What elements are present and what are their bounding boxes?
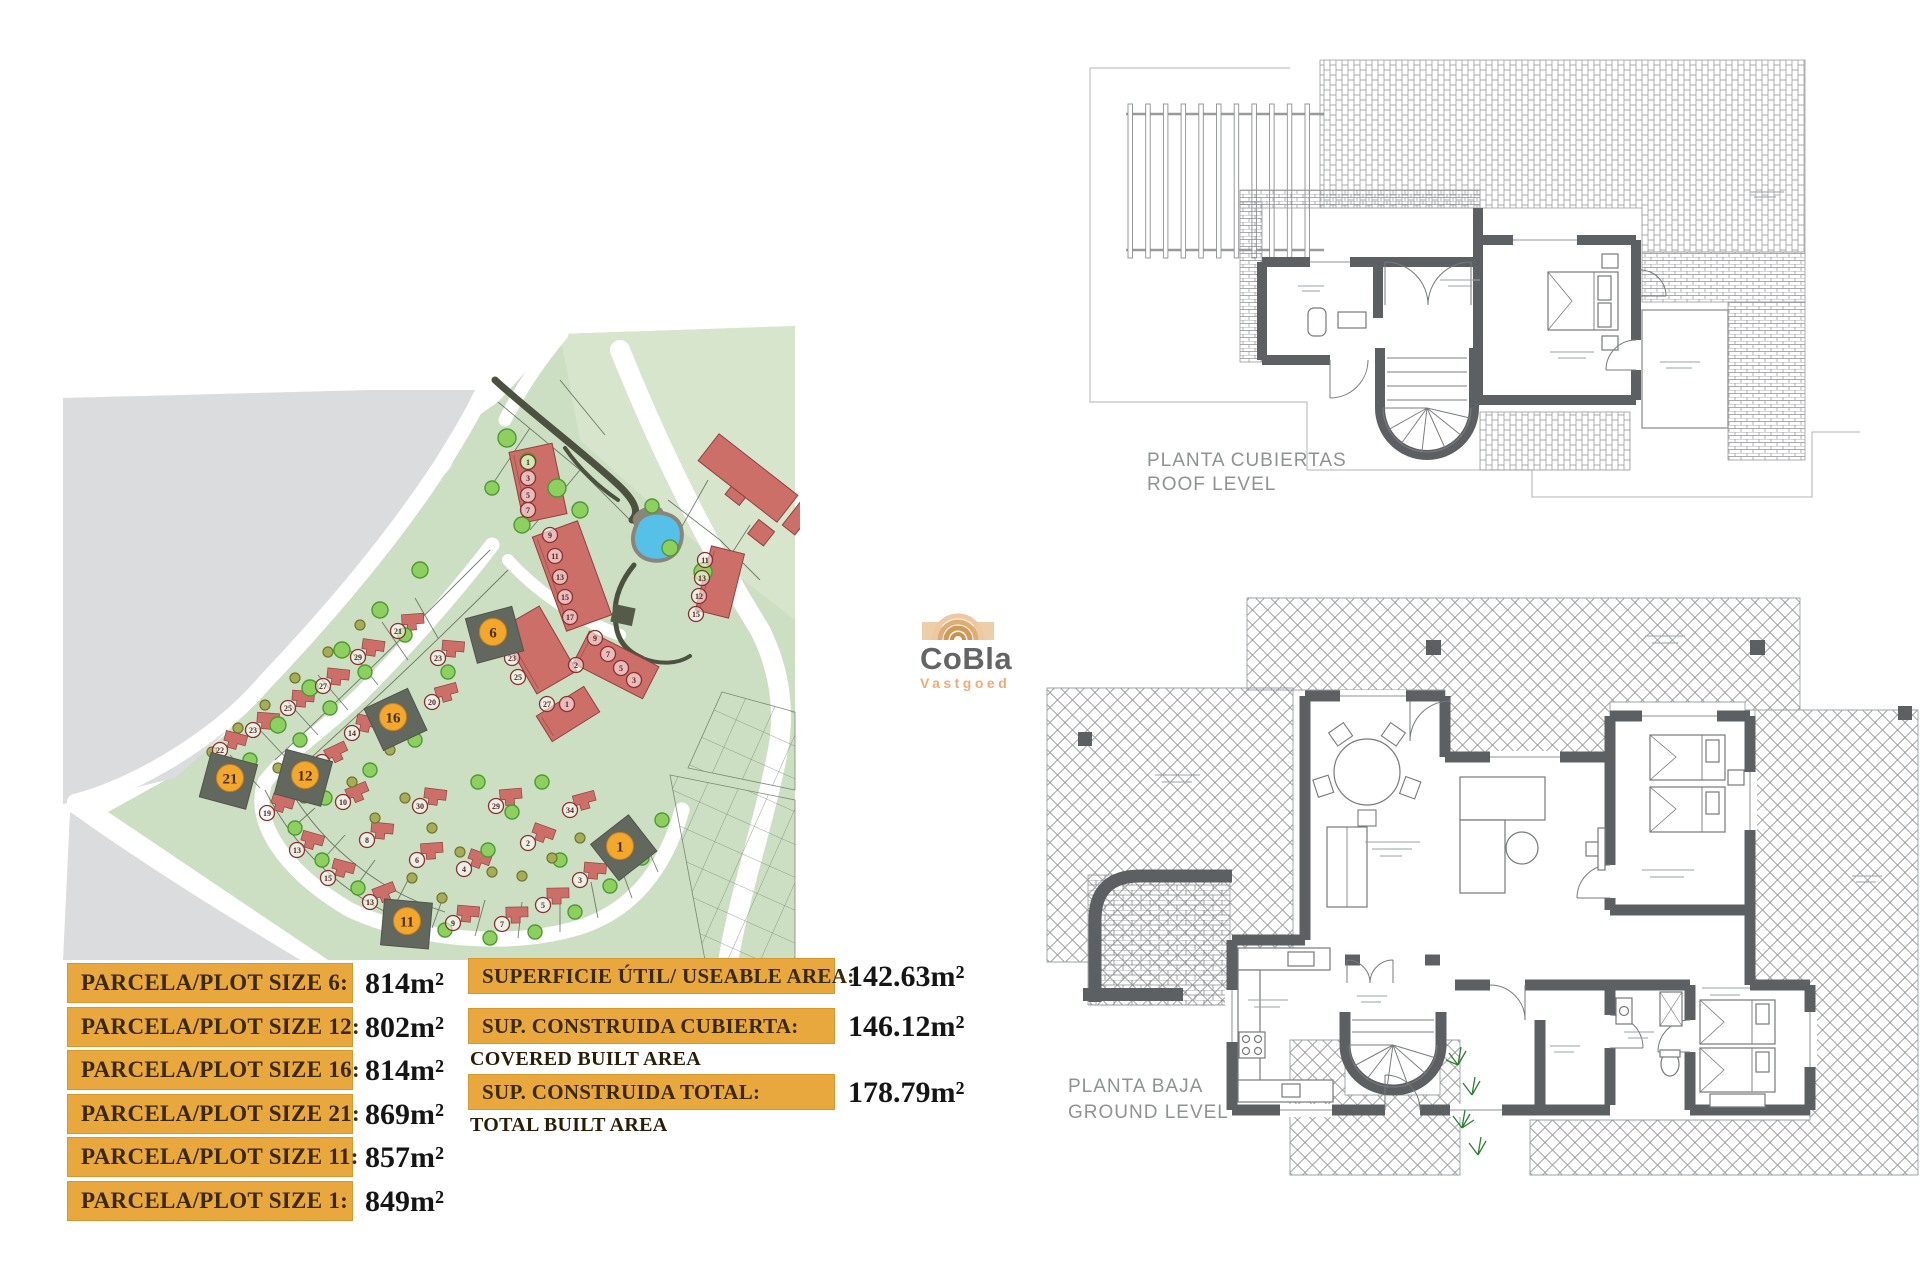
unit-marker: 15 [558, 590, 573, 605]
svg-text:3: 3 [578, 876, 582, 885]
unit-marker: 23 [431, 651, 446, 666]
tree-icon [441, 665, 455, 679]
svg-text:22: 22 [216, 746, 224, 755]
pergola-slat [1270, 104, 1275, 258]
tree-icon [358, 665, 372, 679]
tree-icon [270, 717, 286, 733]
svg-text:7: 7 [526, 506, 530, 515]
unit-marker: 21 [391, 624, 406, 639]
unit-marker: 4 [457, 862, 472, 877]
plot-size-label: PARCELA/PLOT SIZE 11: [67, 1137, 353, 1177]
dining-table [1334, 739, 1400, 805]
tree-icon [535, 775, 549, 789]
plot-size-value: 802m² [365, 1008, 444, 1048]
roof-plan-title-es: PLANTA CUBIERTAS [1147, 450, 1347, 471]
built-area-label: SUP. CONSTRUIDA TOTAL: [468, 1074, 835, 1110]
nightstand [1602, 254, 1618, 268]
unit-marker: 3 [627, 673, 642, 688]
stove [1239, 1032, 1265, 1058]
unit-marker: 7 [521, 503, 536, 518]
roof-furniture [1308, 254, 1618, 350]
plot-size-label: PARCELA/PLOT SIZE 21: [67, 1094, 353, 1134]
svg-text:12: 12 [298, 769, 313, 785]
svg-text:25: 25 [284, 704, 292, 713]
plot-size-value: 869m² [365, 1095, 444, 1135]
pergola-slat [1199, 104, 1204, 258]
svg-text:2: 2 [574, 661, 578, 670]
svg-text:7: 7 [500, 920, 504, 929]
svg-text:3: 3 [632, 676, 636, 685]
svg-text:17: 17 [566, 613, 574, 622]
tree-icon [568, 905, 582, 919]
svg-text:15: 15 [324, 874, 332, 883]
pergola-slat [1163, 104, 1168, 258]
olive-tree-icon [233, 723, 243, 733]
unit-marker: 20 [425, 695, 440, 710]
plot-size-row: PARCELA/PLOT SIZE 16:814m² [67, 1050, 537, 1094]
svg-text:10: 10 [339, 798, 347, 807]
olive-tree-icon [547, 853, 557, 863]
tree-icon [315, 853, 329, 867]
olive-tree-icon [575, 833, 585, 843]
svg-text:23: 23 [249, 726, 257, 735]
unit-marker: 5 [536, 898, 551, 913]
highlighted-plot-11: 11 [381, 899, 433, 949]
tree-icon [288, 821, 302, 835]
unit-marker: 25 [511, 670, 526, 685]
tree-icon [505, 805, 519, 819]
unit-marker: 17 [563, 610, 578, 625]
svg-text:6: 6 [415, 856, 419, 865]
tree-icon [483, 931, 497, 945]
nightstand [1728, 770, 1744, 785]
svg-text:9: 9 [548, 531, 552, 540]
kitchen-counter [1238, 948, 1330, 970]
toilet [1308, 308, 1326, 336]
roof-plan: PLANTA CUBIERTAS ROOF LEVEL [1060, 40, 1920, 510]
highlighted-plot-number: 16 [380, 704, 407, 731]
tree-icon [645, 499, 659, 513]
tree-icon [412, 562, 428, 578]
pergola-slat [1305, 104, 1310, 258]
olive-tree-icon [437, 893, 447, 903]
plot-size-row: PARCELA/PLOT SIZE 11:857m² [67, 1137, 537, 1181]
svg-text:15: 15 [561, 593, 569, 602]
unit-marker: 1 [560, 697, 575, 712]
svg-text:27: 27 [319, 682, 327, 691]
svg-text:11: 11 [400, 915, 414, 931]
plot-size-row: PARCELA/PLOT SIZE 6:814m² [67, 963, 537, 1007]
ground-plan: PLANTA BAJA GROUND LEVEL [1020, 580, 1920, 1280]
unit-marker: 29 [489, 799, 504, 814]
svg-text:21: 21 [394, 627, 402, 636]
tree-icon [485, 481, 499, 495]
svg-text:13: 13 [556, 573, 564, 582]
unit-marker: 10 [336, 795, 351, 810]
built-area-sublabel: COVERED BUILT AREA [470, 1048, 701, 1071]
tree-icon [481, 843, 495, 857]
dining-chair [1381, 723, 1405, 746]
stair-wall [1345, 1012, 1441, 1090]
built-area-value: 146.12m² [848, 1007, 964, 1047]
unit-marker: 8 [360, 833, 375, 848]
olive-tree-icon [407, 873, 417, 883]
roof-cobble-right [1728, 302, 1805, 460]
built-area-value: 178.79m² [848, 1073, 964, 1113]
svg-text:13: 13 [293, 846, 301, 855]
olive-tree-icon [355, 620, 365, 630]
olive-tree-icon [400, 793, 410, 803]
svg-text:12: 12 [695, 592, 703, 601]
svg-text:20: 20 [428, 698, 436, 707]
tree-icon [363, 763, 377, 777]
unit-marker: 6 [410, 853, 425, 868]
svg-text:16: 16 [386, 711, 402, 727]
plot-size-label: PARCELA/PLOT SIZE 12: [67, 1007, 353, 1047]
unit-marker: 3 [521, 471, 536, 486]
ground-plan-title-es: PLANTA BAJA [1068, 1076, 1203, 1097]
unit-marker: 11 [548, 549, 563, 564]
unit-marker: 19 [260, 806, 275, 821]
unit-marker: 1 [521, 455, 536, 470]
ground-plan-title-en: GROUND LEVEL [1068, 1102, 1229, 1123]
svg-text:1: 1 [616, 840, 624, 856]
svg-text:13: 13 [366, 898, 374, 907]
plot-size-row: PARCELA/PLOT SIZE 1:849m² [67, 1181, 537, 1225]
built-area-sublabel: TOTAL BUILT AREA [470, 1114, 668, 1137]
roof-terrace [1642, 310, 1728, 428]
unit-marker: 5 [521, 488, 536, 503]
unit-marker: 11 [698, 553, 713, 568]
svg-text:5: 5 [541, 901, 545, 910]
unit-marker: 7 [495, 917, 510, 932]
tree-icon [372, 602, 388, 618]
unit-marker: 13 [363, 895, 378, 910]
roof-tiles [1320, 60, 1805, 252]
tree-icon [293, 733, 307, 747]
unit-marker: 30 [413, 799, 428, 814]
brochure-page: 1913151397532468103029342129272523222320… [0, 0, 1920, 1280]
unit-marker: 5 [614, 661, 629, 676]
roof-tiles-patch [1480, 412, 1630, 470]
pergola-bricks [1088, 875, 1230, 1005]
olive-tree-icon [323, 647, 333, 657]
plot-size-value: 849m² [365, 1182, 444, 1222]
tree-icon [662, 540, 678, 556]
unit-marker: 9 [446, 916, 461, 931]
unit-marker: 9 [543, 528, 558, 543]
plot-size-value: 814m² [365, 964, 444, 1004]
pergola-slat [1234, 104, 1239, 258]
svg-text:9: 9 [593, 634, 597, 643]
svg-text:13: 13 [698, 574, 706, 583]
olive-tree-icon [487, 867, 497, 877]
svg-text:11: 11 [551, 552, 559, 561]
unit-marker: 23 [246, 723, 261, 738]
plot-size-row: PARCELA/PLOT SIZE 12:802m² [67, 1007, 537, 1051]
built-area-row: SUP. CONSTRUIDA TOTAL:178.79m²TOTAL BUIL… [468, 1074, 948, 1118]
unit-marker: 15 [689, 607, 704, 622]
svg-text:15: 15 [692, 610, 700, 619]
plot-size-label: PARCELA/PLOT SIZE 1: [67, 1181, 353, 1221]
highlighted-plot-number: 1 [607, 833, 634, 860]
plot-size-label: PARCELA/PLOT SIZE 16: [67, 1050, 353, 1090]
svg-text:1: 1 [565, 700, 569, 709]
olive-tree-icon [370, 813, 380, 823]
built-area-label: SUPERFICIE ÚTIL/ USEABLE AREA: [468, 958, 835, 994]
unit-marker: 2 [521, 836, 536, 851]
olive-tree-icon [517, 871, 527, 881]
svg-text:3: 3 [526, 474, 530, 483]
svg-text:2: 2 [526, 839, 530, 848]
tree-icon [498, 429, 516, 447]
olive-tree-icon [290, 673, 300, 683]
svg-text:30: 30 [416, 802, 424, 811]
svg-text:5: 5 [526, 491, 530, 500]
olive-tree-icon [347, 777, 357, 787]
plot-size-table: PARCELA/PLOT SIZE 6:814m²PARCELA/PLOT SI… [67, 963, 537, 1233]
built-area-row: SUP. CONSTRUIDA CUBIERTA:146.12m²COVERED… [468, 1008, 948, 1052]
cobla-logo-icon [920, 598, 1002, 642]
built-area-value: 142.63m² [848, 957, 964, 997]
coffee-table [1506, 832, 1538, 864]
roof-plan-title-en: ROOF LEVEL [1147, 474, 1276, 495]
pergola-slat [1217, 104, 1222, 258]
built-area-label: SUP. CONSTRUIDA CUBIERTA: [468, 1008, 835, 1044]
svg-text:6: 6 [489, 626, 497, 642]
pergola-wall-base [1083, 988, 1183, 1001]
dining-chair [1400, 777, 1421, 799]
dining-chair [1358, 810, 1376, 826]
svg-text:8: 8 [365, 836, 369, 845]
sofa [1460, 820, 1505, 893]
svg-text:29: 29 [354, 653, 362, 662]
unit-marker: 13 [695, 571, 710, 586]
unit-marker: 29 [351, 650, 366, 665]
svg-text:21: 21 [223, 772, 238, 788]
svg-text:34: 34 [566, 806, 574, 815]
plot-size-row: PARCELA/PLOT SIZE 21:869m² [67, 1094, 537, 1138]
unit-marker: 3 [573, 873, 588, 888]
svg-text:25: 25 [514, 673, 522, 682]
olive-tree-icon [427, 823, 437, 833]
unit-marker: 27 [316, 679, 331, 694]
built-area-table: SUPERFICIE ÚTIL/ USEABLE AREA:142.63m²SU… [468, 958, 948, 1138]
svg-text:14: 14 [348, 729, 356, 738]
unit-marker: 15 [321, 871, 336, 886]
svg-text:29: 29 [492, 802, 500, 811]
plot-size-value: 857m² [365, 1138, 444, 1178]
tree-icon [334, 642, 350, 658]
roof-pergola [1126, 104, 1324, 258]
tree-icon [514, 517, 530, 533]
svg-text:4: 4 [462, 865, 466, 874]
tree-icon [603, 879, 617, 893]
olive-tree-icon [455, 847, 465, 857]
built-area-row: SUPERFICIE ÚTIL/ USEABLE AREA:142.63m² [468, 958, 948, 1002]
pergola-slat [1128, 104, 1133, 258]
svg-text:9: 9 [451, 919, 455, 928]
highlighted-plot-number: 21 [217, 765, 244, 792]
highlighted-plot-number: 6 [480, 619, 507, 646]
dining-chair [1313, 775, 1334, 797]
svg-text:27: 27 [543, 700, 551, 709]
tree-icon [528, 925, 542, 939]
pergola-slat [1181, 104, 1186, 258]
unit-marker: 25 [281, 701, 296, 716]
svg-text:19: 19 [263, 809, 271, 818]
unit-marker: 12 [692, 589, 707, 604]
pergola-slat [1146, 104, 1151, 258]
olive-tree-icon [260, 700, 270, 710]
highlighted-plot-number: 12 [292, 762, 319, 789]
tree-icon [655, 813, 669, 827]
unit-marker: 27 [540, 697, 555, 712]
tree-icon [548, 479, 566, 497]
svg-text:23: 23 [434, 654, 442, 663]
pergola-slat [1287, 104, 1292, 258]
sink [1338, 312, 1366, 328]
sofa [1460, 777, 1545, 820]
tree-icon [572, 502, 588, 518]
kitchen-counter [1238, 970, 1260, 1082]
tree-icon [351, 881, 365, 895]
unit-marker: 34 [563, 803, 578, 818]
unit-marker: 13 [553, 570, 568, 585]
plot-size-value: 814m² [365, 1051, 444, 1091]
wardrobe [1710, 1094, 1765, 1107]
svg-text:5: 5 [619, 664, 623, 673]
unit-marker: 9 [588, 631, 603, 646]
roof-cobble-strip-h [1240, 190, 1480, 208]
tree-icon [471, 775, 485, 789]
plot-size-label: PARCELA/PLOT SIZE 6: [67, 963, 353, 1003]
dining-chair [1329, 723, 1353, 746]
unit-marker: 2 [569, 658, 584, 673]
site-plan: 1913151397532468103029342129272523222320… [60, 320, 800, 965]
svg-text:11: 11 [701, 556, 709, 565]
unit-marker: 13 [290, 843, 305, 858]
svg-text:7: 7 [606, 650, 610, 659]
unit-marker: 14 [345, 726, 360, 741]
highlighted-plot-number: 11 [394, 908, 421, 935]
tree-icon [323, 701, 337, 715]
svg-text:1: 1 [526, 458, 530, 467]
unit-marker: 7 [601, 647, 616, 662]
